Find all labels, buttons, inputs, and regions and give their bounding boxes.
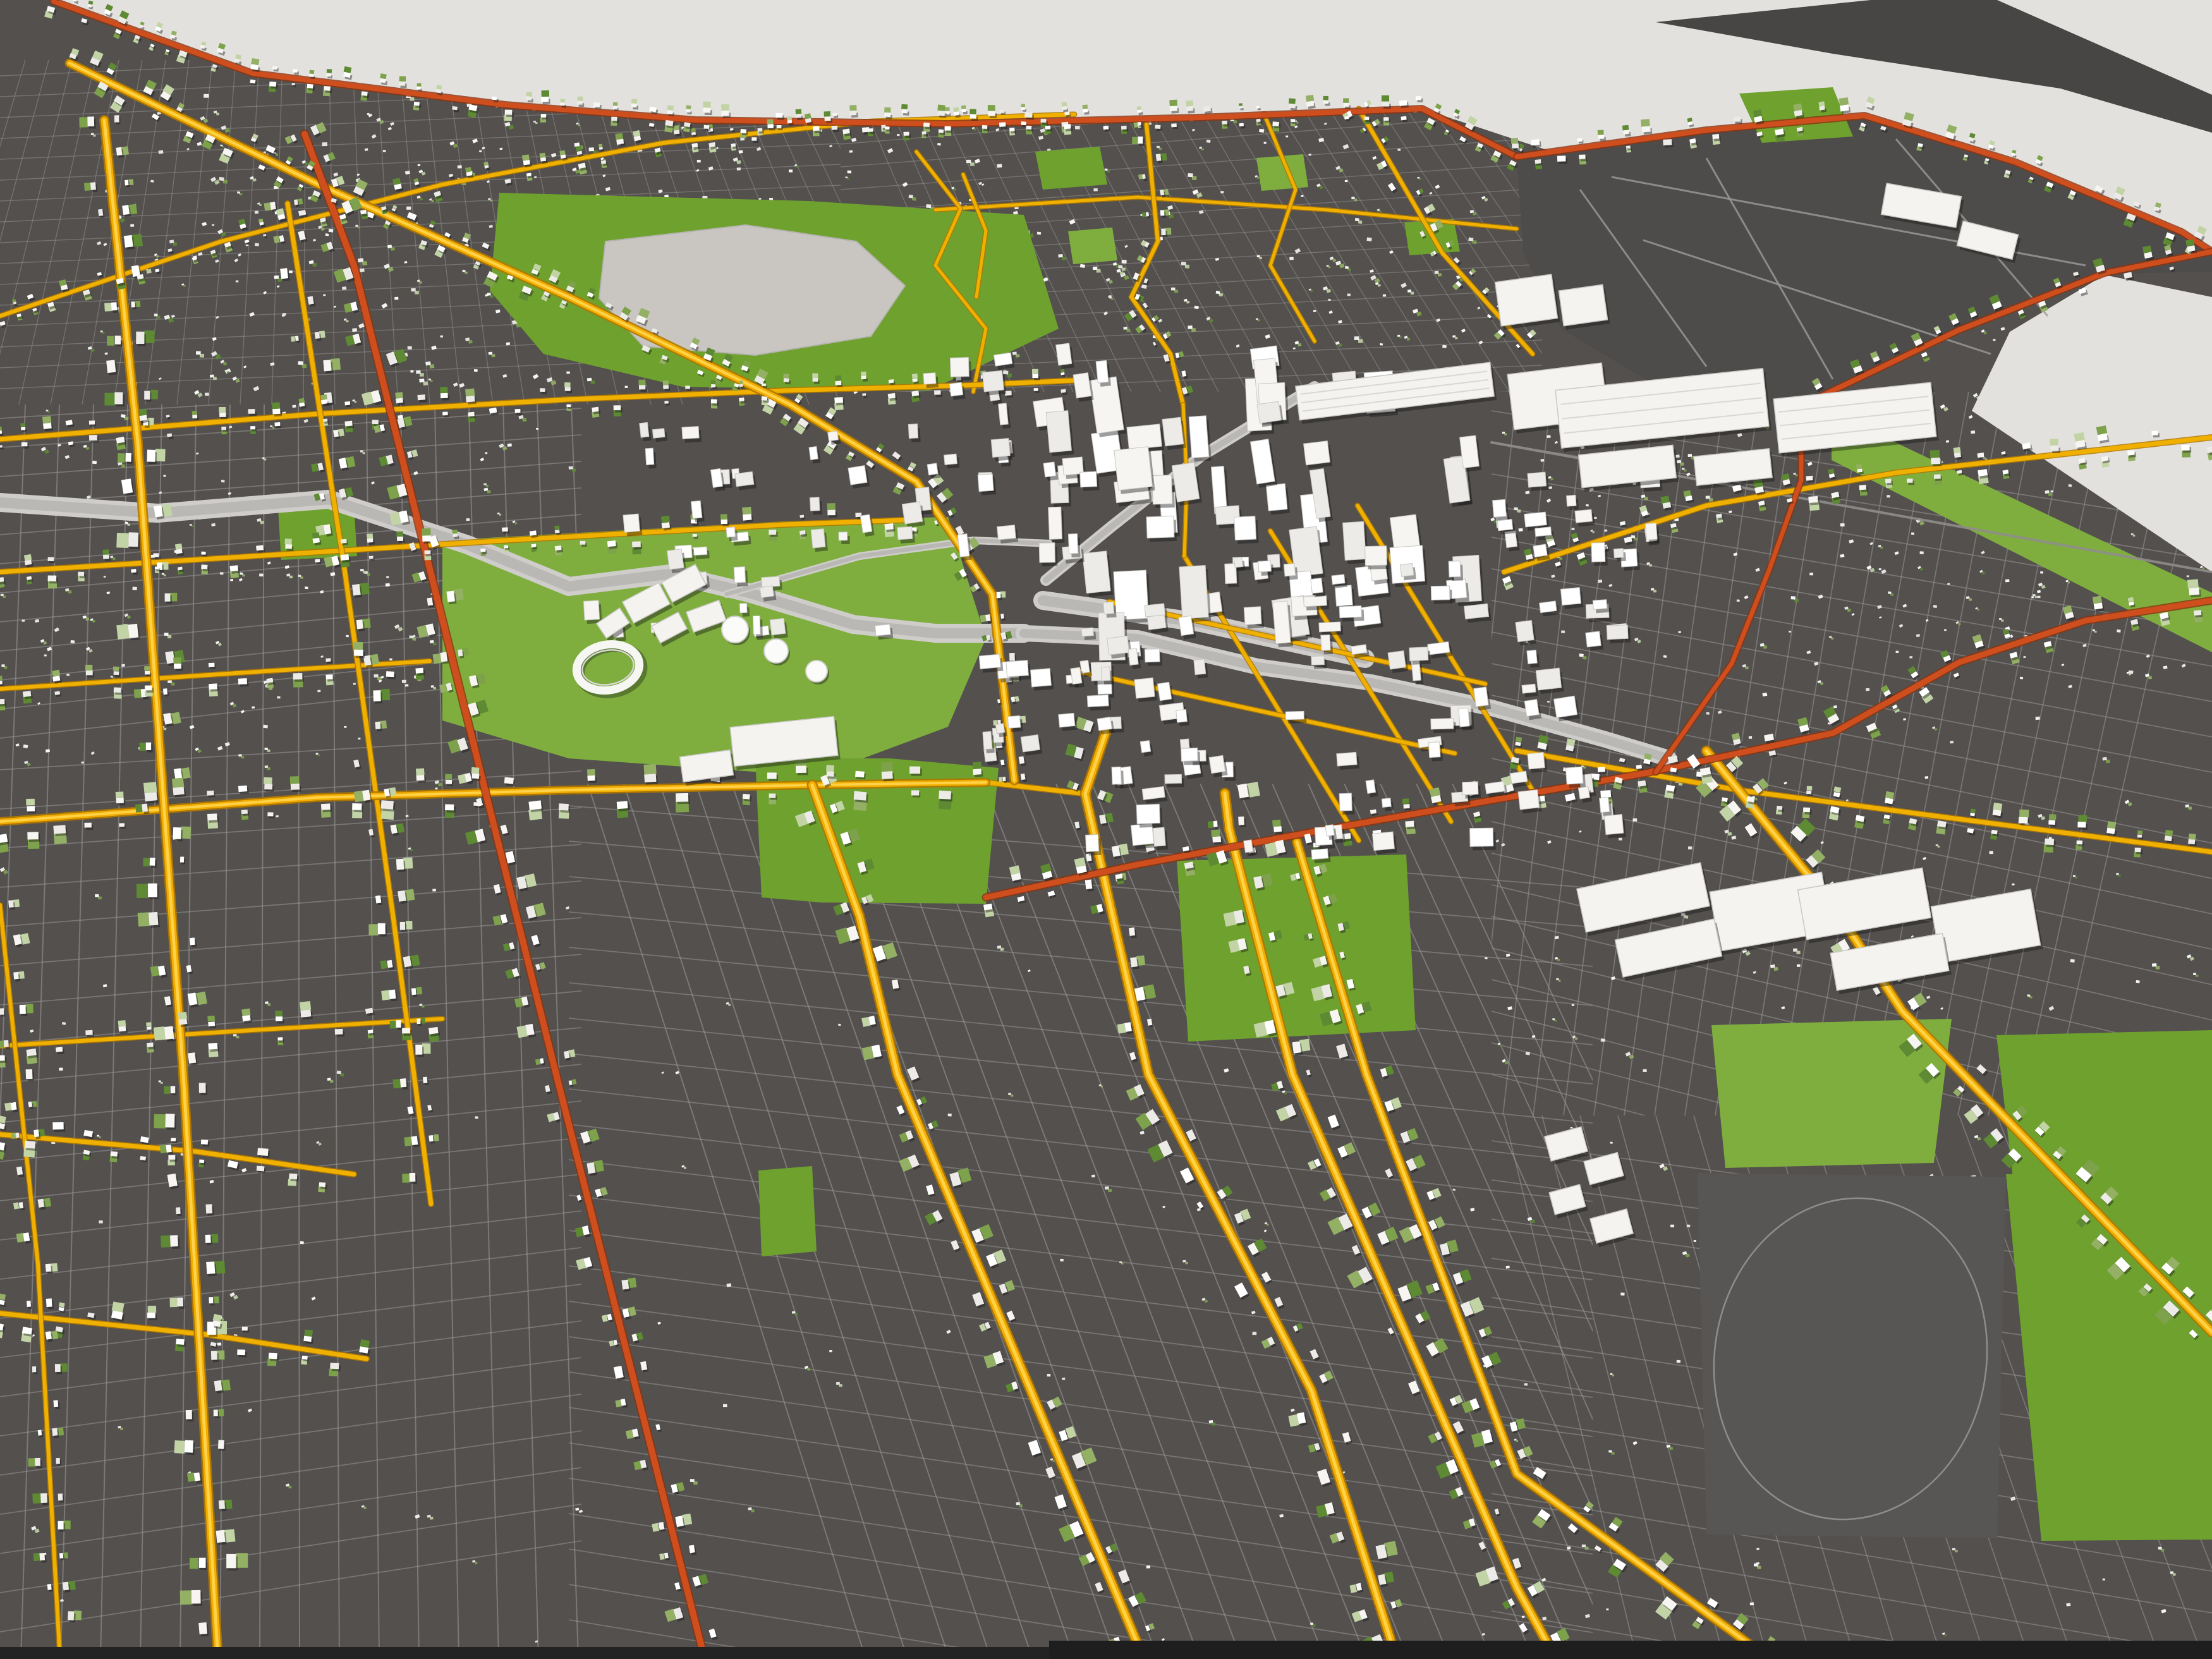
city-3d-viewport[interactable]	[0, 0, 2212, 1659]
city-model-canvas	[0, 0, 2212, 1659]
